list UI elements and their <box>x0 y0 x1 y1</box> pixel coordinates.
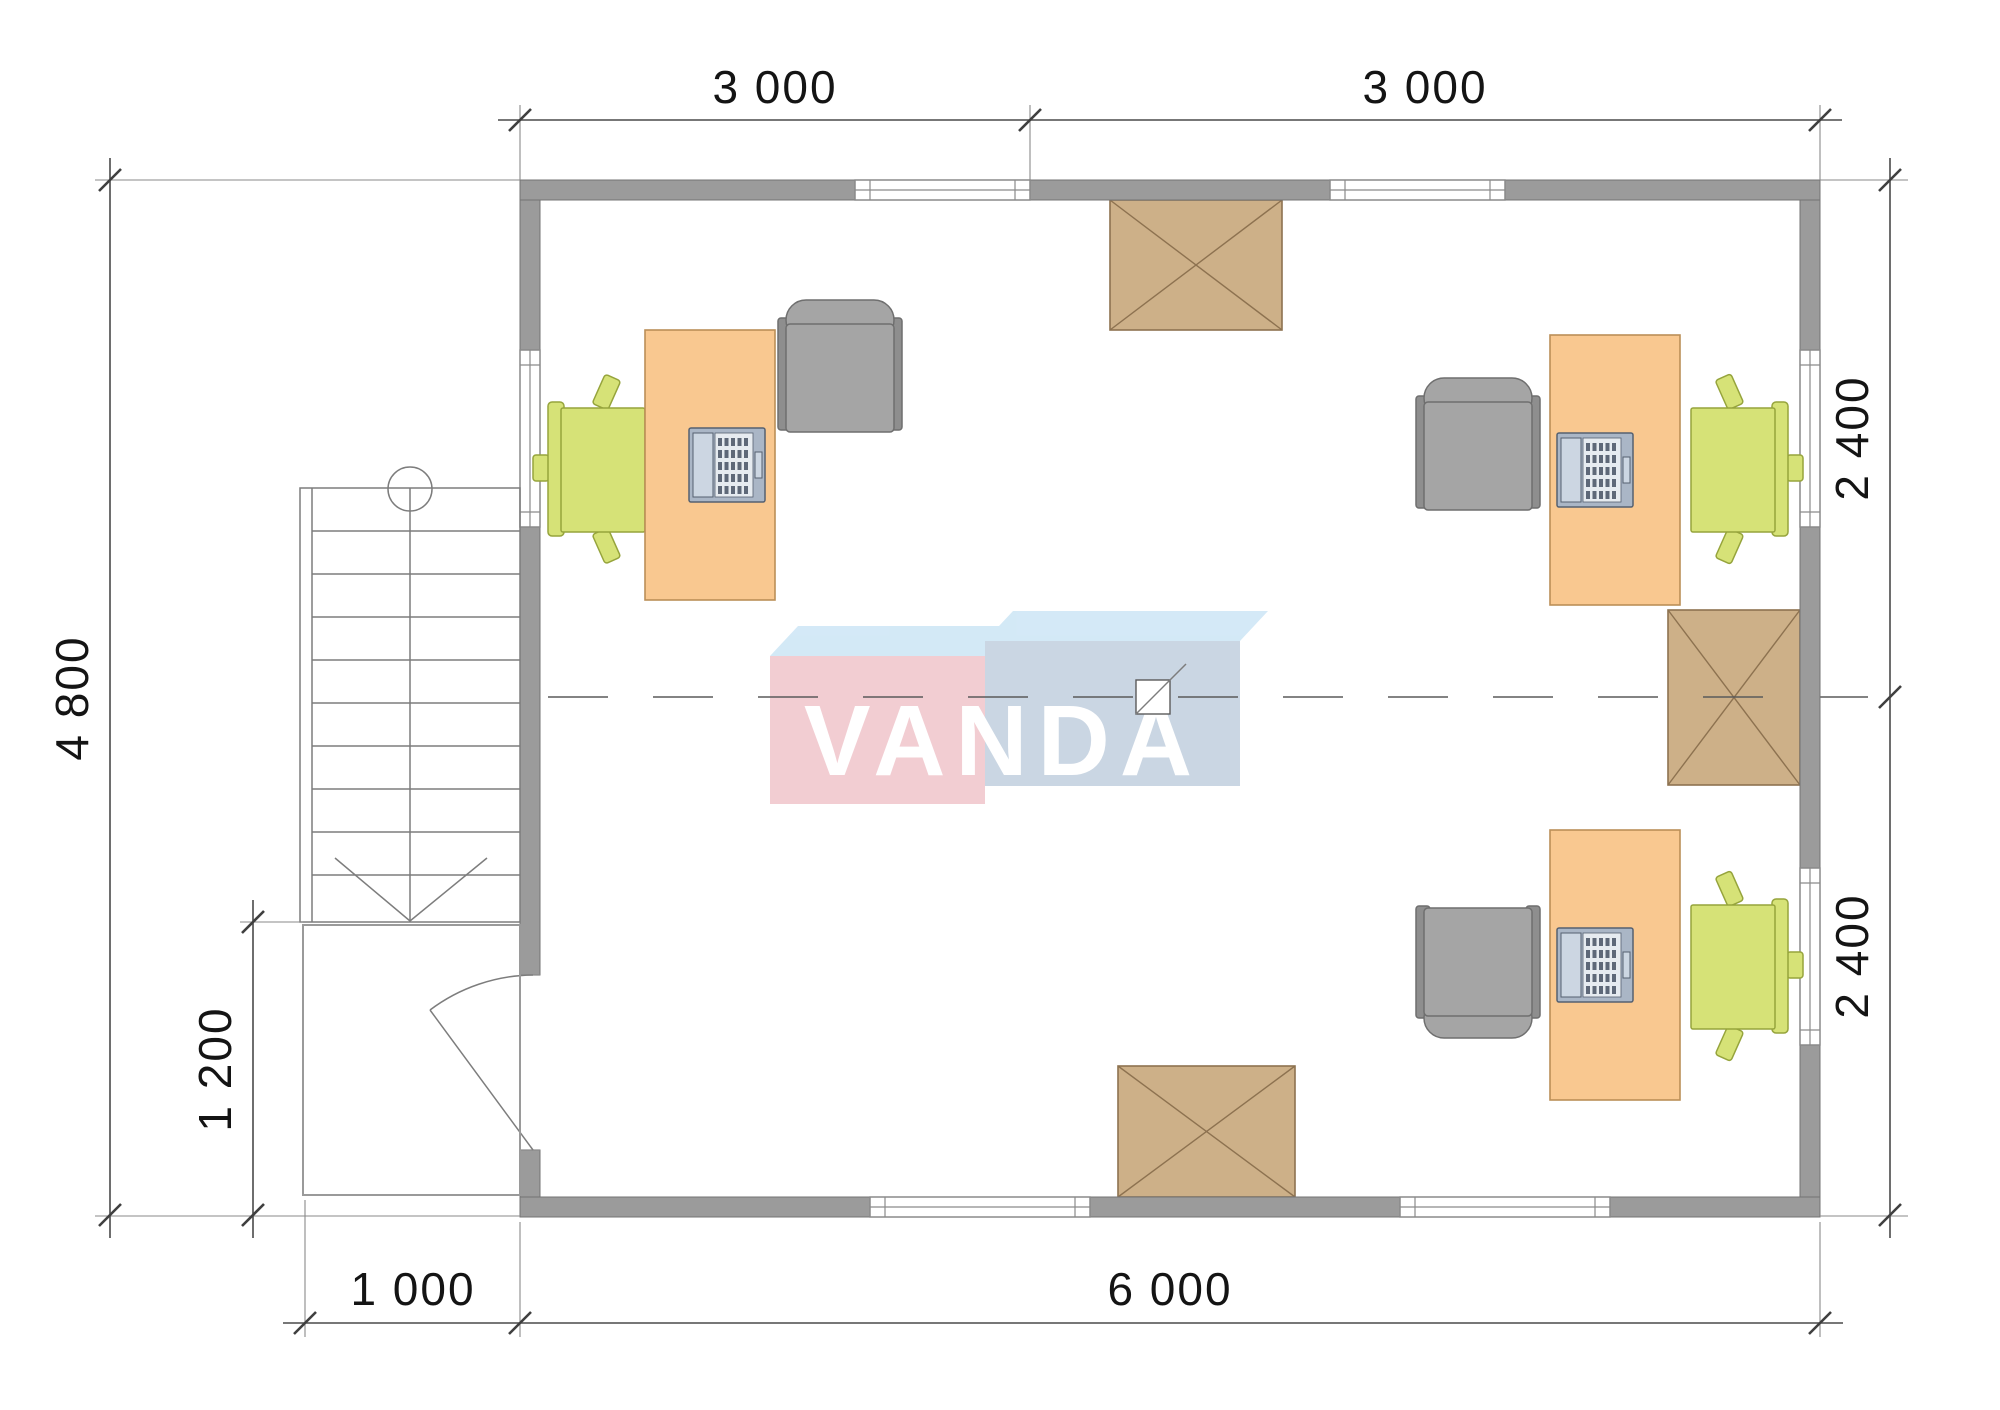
guest-armchair-icon <box>1416 378 1540 510</box>
window-bottom-right <box>1400 1197 1610 1217</box>
door-swing-arc <box>430 975 533 1010</box>
floor-plan-canvas: VANDA <box>0 0 2000 1410</box>
task-chair-icon <box>1691 374 1803 565</box>
workstation-bottom-right <box>1416 830 1803 1100</box>
workstation-top-left <box>533 300 902 600</box>
floor-plan-drawing: VANDA <box>0 0 2000 1410</box>
laptop-icon <box>1557 928 1633 1002</box>
logo-right-box-top-face <box>985 611 1268 641</box>
vanda-logo: VANDA <box>770 611 1268 804</box>
dim-label-porch-height: 1 200 <box>189 1006 241 1131</box>
skylight-box-bottom <box>1118 1066 1295 1216</box>
skylight-box-top <box>1110 181 1282 330</box>
door-leaf <box>430 1010 533 1150</box>
dim-label-left-total: 4 800 <box>46 635 98 760</box>
window-bottom-left <box>870 1197 1090 1217</box>
entrance-door <box>430 975 540 1150</box>
logo-left-box-top-face <box>770 626 1013 656</box>
dim-label-right-lower: 2 400 <box>1826 893 1878 1018</box>
window-top-left <box>855 180 1030 200</box>
task-chair-icon <box>1691 871 1803 1062</box>
laptop-icon <box>1557 433 1633 507</box>
window-right-upper <box>1800 350 1820 527</box>
window-top-right <box>1330 180 1505 200</box>
dim-label-bottom-porch: 1 000 <box>350 1263 475 1315</box>
dim-label-bottom-total: 6 000 <box>1107 1263 1232 1315</box>
guest-armchair-icon <box>1416 906 1540 1038</box>
stair-direction-arrow <box>335 858 487 921</box>
dim-label-right-upper: 2 400 <box>1826 375 1878 500</box>
workstation-top-right <box>1416 335 1803 605</box>
staircase <box>300 467 520 922</box>
entrance-porch <box>303 925 520 1195</box>
dim-label-top-left: 3 000 <box>712 61 837 113</box>
dim-label-top-right: 3 000 <box>1362 61 1487 113</box>
window-left <box>520 350 540 527</box>
task-chair-icon <box>533 374 645 564</box>
laptop-icon <box>689 428 765 502</box>
guest-armchair-icon <box>778 300 902 432</box>
